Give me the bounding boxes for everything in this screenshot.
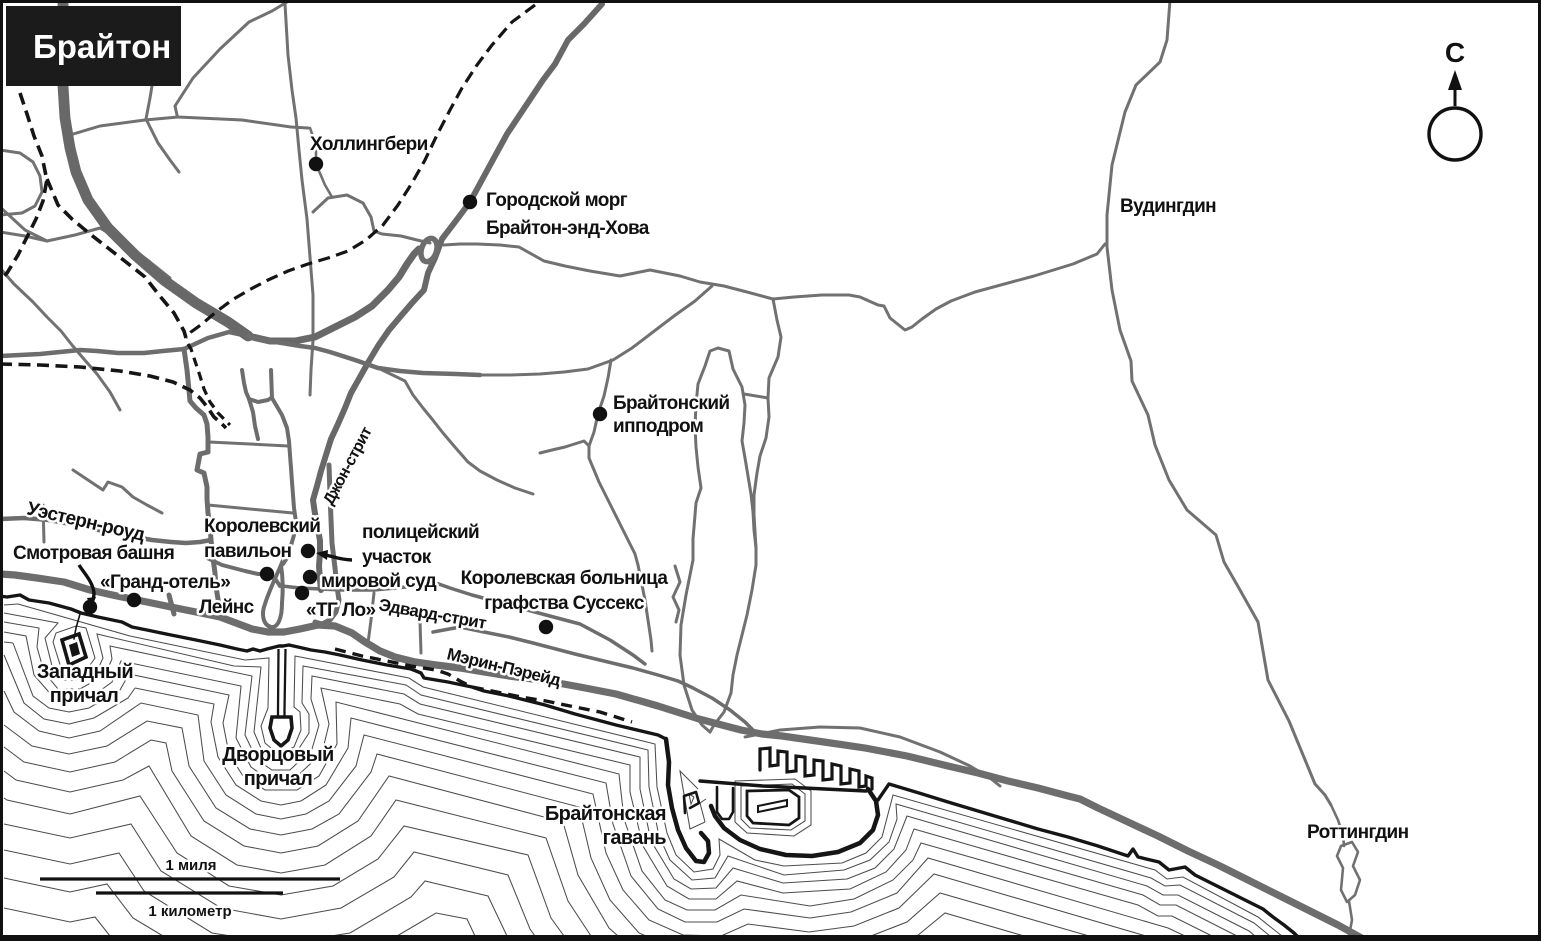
svg-text:причал: причал [50, 685, 118, 707]
svg-text:Западный: Западный [37, 661, 133, 683]
svg-text:Смотровая башня: Смотровая башня [13, 543, 174, 564]
svg-text:Брайтон-энд-Хова: Брайтон-энд-Хова [486, 218, 650, 239]
svg-text:Королевская больница: Королевская больница [461, 568, 669, 589]
svg-text:павильон: павильон [204, 541, 292, 562]
svg-text:«ТГ Ло»: «ТГ Ло» [306, 600, 376, 621]
svg-text:участок: участок [362, 547, 432, 568]
svg-text:Роттингдин: Роттингдин [1307, 822, 1409, 843]
svg-text:гавань: гавань [603, 827, 667, 849]
svg-text:полицейский: полицейский [362, 522, 479, 543]
svg-text:1 миля: 1 миля [165, 857, 216, 874]
svg-text:Брайтонская: Брайтонская [545, 803, 666, 825]
svg-text:1 километр: 1 километр [148, 903, 231, 920]
svg-text:мировой суд: мировой суд [321, 571, 437, 592]
svg-text:«Гранд-отель»: «Гранд-отель» [100, 572, 230, 593]
svg-text:Дворцовый: Дворцовый [222, 744, 334, 766]
svg-text:ипподром: ипподром [613, 416, 703, 437]
svg-text:Королевский: Королевский [204, 516, 320, 537]
svg-text:Брайтонский: Брайтонский [613, 393, 729, 414]
svg-text:графства Суссекс: графства Суссекс [484, 593, 645, 614]
svg-text:причал: причал [244, 768, 312, 790]
svg-text:Брайтон: Брайтон [33, 28, 171, 65]
svg-text:Лейнс: Лейнс [199, 597, 255, 618]
svg-text:С: С [1445, 37, 1465, 68]
svg-text:Вудингдин: Вудингдин [1120, 196, 1216, 217]
svg-text:Холлингбери: Холлингбери [310, 134, 428, 155]
svg-text:Городской морг: Городской морг [486, 190, 628, 211]
